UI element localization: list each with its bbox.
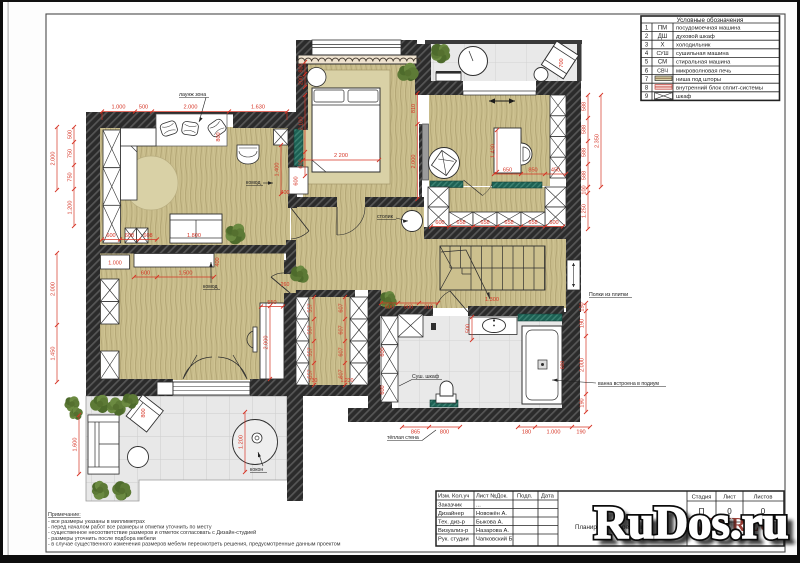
svg-text:550: 550 bbox=[267, 300, 276, 306]
svg-text:557: 557 bbox=[308, 325, 314, 334]
svg-text:2.000: 2.000 bbox=[580, 358, 586, 372]
svg-text:Лист №Док.: Лист №Док. bbox=[476, 494, 508, 500]
svg-text:1.230: 1.230 bbox=[341, 378, 354, 384]
svg-text:2.000: 2.000 bbox=[411, 155, 417, 169]
svg-text:260: 260 bbox=[281, 282, 290, 288]
svg-text:2.000: 2.000 bbox=[264, 336, 270, 350]
svg-text:658: 658 bbox=[528, 220, 537, 226]
svg-text:Изм. Кол.уч: Изм. Кол.уч bbox=[438, 494, 469, 500]
svg-text:1.300: 1.300 bbox=[485, 297, 499, 303]
svg-text:607: 607 bbox=[339, 303, 345, 312]
svg-text:1.000: 1.000 bbox=[112, 105, 126, 111]
svg-text:ДШ: ДШ bbox=[658, 34, 668, 40]
svg-text:190: 190 bbox=[580, 319, 586, 328]
svg-text:450: 450 bbox=[551, 168, 560, 174]
svg-text:1.400: 1.400 bbox=[275, 163, 281, 177]
svg-text:1.800: 1.800 bbox=[187, 233, 201, 239]
svg-text:Суш. шкаф: Суш. шкаф bbox=[412, 374, 440, 380]
svg-text:607: 607 bbox=[339, 347, 345, 356]
svg-text:1.000: 1.000 bbox=[547, 430, 561, 436]
svg-text:ниша под шторы: ниша под шторы bbox=[676, 77, 721, 83]
svg-text:2.000: 2.000 bbox=[51, 152, 57, 166]
svg-text:СУШ: СУШ bbox=[656, 51, 668, 57]
svg-text:Полки из плитки: Полки из плитки bbox=[589, 292, 628, 298]
svg-text:600: 600 bbox=[141, 271, 150, 277]
svg-text:1.500: 1.500 bbox=[179, 271, 193, 277]
svg-text:600: 600 bbox=[380, 385, 386, 394]
svg-text:190: 190 bbox=[576, 430, 585, 436]
svg-text:658: 658 bbox=[456, 220, 465, 226]
svg-text:Примечание:: Примечание: bbox=[48, 512, 81, 518]
svg-text:Подп.: Подп. bbox=[517, 494, 533, 500]
svg-text:Назарова А.: Назарова А. bbox=[476, 528, 509, 534]
svg-text:Новожён А.: Новожён А. bbox=[476, 511, 507, 517]
svg-text:600: 600 bbox=[549, 220, 558, 226]
svg-text:658: 658 bbox=[504, 220, 513, 226]
svg-text:600: 600 bbox=[560, 361, 566, 370]
svg-text:Быкова А.: Быкова А. bbox=[476, 520, 504, 526]
svg-text:Дата: Дата bbox=[541, 494, 555, 500]
svg-text:1.250: 1.250 bbox=[582, 204, 588, 218]
svg-text:1.430: 1.430 bbox=[491, 144, 497, 158]
svg-text:1.000: 1.000 bbox=[108, 261, 122, 267]
svg-text:Заказчик: Заказчик bbox=[438, 503, 462, 509]
svg-text:557: 557 bbox=[308, 303, 314, 312]
svg-text:400: 400 bbox=[215, 257, 221, 266]
svg-text:650: 650 bbox=[503, 168, 512, 174]
svg-text:1.200: 1.200 bbox=[68, 201, 74, 215]
svg-text:Рук. студии: Рук. студии bbox=[438, 537, 469, 543]
svg-text:Тех. диз-р: Тех. диз-р bbox=[438, 520, 465, 526]
svg-text:ПМ: ПМ bbox=[658, 25, 667, 31]
svg-text:Х: Х bbox=[660, 43, 664, 49]
svg-text:600: 600 bbox=[106, 233, 115, 239]
svg-text:2.000: 2.000 bbox=[184, 105, 198, 111]
svg-text:180: 180 bbox=[522, 430, 531, 436]
svg-text:стиральная машина: стиральная машина bbox=[676, 60, 731, 66]
svg-text:RuDos.ru: RuDos.ru bbox=[594, 497, 789, 549]
svg-text:100: 100 bbox=[582, 185, 588, 194]
svg-text:588: 588 bbox=[582, 148, 588, 157]
svg-text:850: 850 bbox=[528, 168, 537, 174]
svg-text:- в случае существенного измен: - в случае существенного изменения разме… bbox=[48, 541, 341, 547]
svg-text:Чапковский Б.: Чапковский Б. bbox=[476, 536, 514, 543]
svg-text:500: 500 bbox=[404, 305, 413, 311]
svg-text:ванна встроена в подиум: ванна встроена в подиум bbox=[598, 381, 659, 387]
svg-text:500: 500 bbox=[68, 130, 74, 139]
svg-text:810: 810 bbox=[411, 104, 417, 113]
svg-text:2.100: 2.100 bbox=[299, 117, 305, 131]
svg-text:кокон: кокон bbox=[250, 467, 263, 473]
svg-text:607: 607 bbox=[339, 325, 345, 334]
svg-text:588: 588 bbox=[582, 102, 588, 111]
svg-text:1.450: 1.450 bbox=[51, 347, 57, 361]
svg-text:200: 200 bbox=[299, 76, 305, 85]
svg-text:500: 500 bbox=[466, 324, 472, 333]
svg-text:600: 600 bbox=[294, 176, 300, 185]
svg-text:1.630: 1.630 bbox=[251, 105, 265, 111]
svg-text:столик: столик bbox=[377, 214, 394, 220]
svg-text:800: 800 bbox=[141, 408, 147, 417]
svg-text:400: 400 bbox=[280, 190, 289, 196]
svg-text:600: 600 bbox=[380, 347, 386, 356]
svg-text:2 200: 2 200 bbox=[334, 153, 348, 159]
svg-text:комод: комод bbox=[246, 180, 261, 186]
svg-text:588: 588 bbox=[582, 125, 588, 134]
svg-text:600: 600 bbox=[385, 305, 394, 311]
svg-text:700: 700 bbox=[559, 58, 565, 67]
svg-text:800: 800 bbox=[440, 430, 449, 436]
svg-text:сушильная машина: сушильная машина bbox=[676, 51, 730, 57]
svg-text:1.600: 1.600 bbox=[73, 438, 79, 452]
svg-text:СМ: СМ bbox=[658, 60, 667, 66]
svg-text:Дизайнер: Дизайнер bbox=[438, 510, 464, 517]
svg-text:730: 730 bbox=[309, 378, 318, 384]
svg-text:557: 557 bbox=[308, 347, 314, 356]
svg-text:посудомоечная машина: посудомоечная машина bbox=[676, 25, 741, 31]
svg-text:комод: комод bbox=[203, 284, 218, 290]
svg-text:тёплая стена: тёплая стена bbox=[387, 435, 419, 441]
svg-text:холодильник: холодильник bbox=[676, 43, 711, 49]
svg-text:Условные обозначения: Условные обозначения bbox=[677, 17, 744, 24]
svg-text:750: 750 bbox=[68, 149, 74, 158]
svg-text:588: 588 bbox=[582, 171, 588, 180]
svg-text:310: 310 bbox=[424, 305, 433, 311]
svg-text:600: 600 bbox=[435, 220, 444, 226]
svg-text:духовой шкаф: духовой шкаф bbox=[676, 33, 715, 40]
svg-text:500: 500 bbox=[139, 105, 148, 111]
svg-text:190: 190 bbox=[580, 398, 586, 407]
svg-text:800: 800 bbox=[216, 132, 222, 141]
svg-text:Визуализ-р: Визуализ-р bbox=[438, 528, 468, 534]
svg-text:658: 658 bbox=[480, 220, 489, 226]
svg-text:2.000: 2.000 bbox=[51, 282, 57, 296]
svg-text:1.200: 1.200 bbox=[239, 435, 245, 449]
svg-text:600: 600 bbox=[299, 159, 305, 168]
svg-text:608: 608 bbox=[143, 233, 152, 239]
svg-text:...: ... bbox=[476, 503, 481, 509]
svg-text:800: 800 bbox=[299, 63, 305, 72]
svg-text:внутренний блок сплит-системы: внутренний блок сплит-системы bbox=[676, 85, 763, 92]
svg-text:микроволновая печь: микроволновая печь bbox=[676, 68, 731, 74]
svg-text:750: 750 bbox=[68, 172, 74, 181]
svg-text:шкаф: шкаф bbox=[676, 94, 692, 100]
svg-text:2.350: 2.350 bbox=[595, 134, 601, 148]
svg-text:150: 150 bbox=[580, 302, 586, 311]
svg-text:СВЧ: СВЧ bbox=[657, 68, 668, 74]
svg-text:лаунж зона: лаунж зона bbox=[179, 92, 206, 98]
svg-text:608: 608 bbox=[125, 233, 134, 239]
